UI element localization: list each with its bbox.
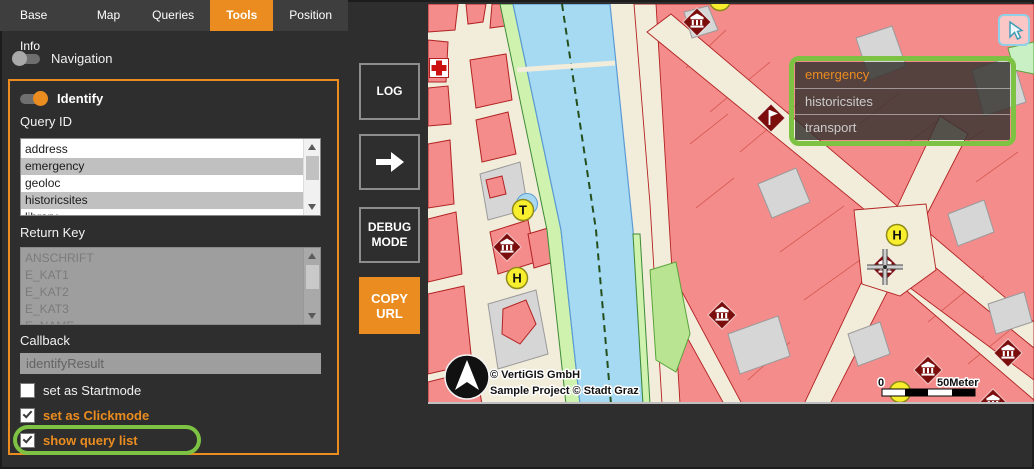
checkbox-label: show query list <box>43 433 138 448</box>
list-option-geoloc[interactable]: geoloc <box>21 175 320 192</box>
list-option-emergency[interactable]: emergency <box>21 158 320 175</box>
scroll-down-icon[interactable] <box>308 313 316 319</box>
svg-text:© VertiGIS GmbH: © VertiGIS GmbH <box>490 369 580 381</box>
svg-text:0: 0 <box>878 377 884 389</box>
svg-text:H: H <box>892 228 901 243</box>
identify-label: Identify <box>57 91 103 106</box>
popup-item-emergency[interactable]: emergency <box>795 62 1010 88</box>
navigation-toggle-row: Navigation <box>14 51 112 66</box>
scrollbar-thumb[interactable] <box>306 156 319 180</box>
tab-bar: Base InfoMapQueriesToolsPosition <box>0 0 348 31</box>
checkbox-set-as-clickmode[interactable]: set as Clickmode <box>20 406 149 424</box>
scrollbar[interactable] <box>303 139 320 215</box>
checkbox-label: set as Clickmode <box>43 408 149 423</box>
list-option-e-kat3[interactable]: E_KAT3 <box>21 301 320 318</box>
list-option-historicsites[interactable]: historicsites <box>21 192 320 209</box>
svg-text:T: T <box>519 203 527 218</box>
return-key-label: Return Key <box>20 225 85 240</box>
list-option-e-kat1[interactable]: E_KAT1 <box>21 267 320 284</box>
svg-text:Sample Project © Stadt Graz: Sample Project © Stadt Graz <box>490 385 639 397</box>
checkbox-set-as-startmode[interactable]: set as Startmode <box>20 381 141 399</box>
svg-text:H: H <box>512 271 521 286</box>
query-id-label: Query ID <box>20 114 72 129</box>
list-option-anschrift[interactable]: ANSCHRIFT <box>21 250 320 267</box>
checkbox-group: set as Startmodeset as Clickmodeshow que… <box>20 381 330 456</box>
checkbox-show-query-list[interactable]: show query list <box>20 431 138 449</box>
list-option-e-name[interactable]: E_NAME <box>21 318 320 325</box>
svg-text:50Meter: 50Meter <box>937 377 979 389</box>
return-key-listbox[interactable]: ANSCHRIFTE_KAT1E_KAT2E_KAT3E_NAME <box>20 247 321 325</box>
checkbox-box[interactable] <box>20 383 35 398</box>
popup-item-transport[interactable]: transport <box>795 114 1010 140</box>
cursor-icon <box>1003 19 1025 41</box>
callback-input[interactable] <box>20 353 321 374</box>
tab-position[interactable]: Position <box>273 0 348 31</box>
hospital-marker <box>430 59 449 78</box>
list-option-address[interactable]: address <box>21 141 320 158</box>
scrollbar-thumb[interactable] <box>306 265 319 289</box>
checkbox-box[interactable] <box>20 408 35 423</box>
scroll-up-icon[interactable] <box>308 144 316 150</box>
check-mark-icon <box>23 433 33 443</box>
checkbox-label: set as Startmode <box>43 383 141 398</box>
tab-queries[interactable]: Queries <box>136 0 210 31</box>
scroll-up-icon[interactable] <box>308 253 316 259</box>
checkbox-box[interactable] <box>20 433 35 448</box>
copy-url-button[interactable]: COPY URL <box>359 277 420 334</box>
north-arrow <box>445 355 489 399</box>
toggle-knob <box>12 51 27 66</box>
identify-toggle[interactable] <box>20 94 46 104</box>
arrow-right-button[interactable] <box>359 134 420 190</box>
scroll-down-icon[interactable] <box>308 204 316 210</box>
bus-stop-marker: H <box>887 225 908 246</box>
log-button[interactable]: LOG <box>359 63 420 120</box>
toggle-knob <box>33 91 48 106</box>
identify-toggle-row: Identify <box>20 91 103 106</box>
tab-map[interactable]: Map <box>81 0 136 31</box>
bus-stop-marker: H <box>507 268 528 289</box>
callback-label: Callback <box>20 333 70 348</box>
query-id-listbox[interactable]: addressemergencygeolochistoricsiteslibra… <box>20 138 321 216</box>
navigation-label: Navigation <box>51 51 112 66</box>
query-list-popup: emergencyhistoricsitestransport <box>795 62 1010 140</box>
map-canvas[interactable]: THH © VertiGIS GmbH Sample Project © Sta… <box>428 4 1034 404</box>
navigation-toggle[interactable] <box>14 54 40 64</box>
identify-group: Identify Query ID addressemergencygeoloc… <box>8 79 339 455</box>
pointer-tool-button[interactable] <box>998 14 1030 46</box>
tab-base-info[interactable]: Base Info <box>4 0 81 31</box>
tab-tools[interactable]: Tools <box>210 0 273 31</box>
check-mark-icon <box>23 408 33 418</box>
arrow-right-icon <box>374 151 406 173</box>
scrollbar[interactable] <box>303 248 320 324</box>
list-option-e-kat2[interactable]: E_KAT2 <box>21 284 320 301</box>
list-option-library[interactable]: library <box>21 209 320 216</box>
debug-mode-button[interactable]: DEBUG MODE <box>359 207 420 263</box>
application-window: Base InfoMapQueriesToolsPosition Navigat… <box>0 0 1034 469</box>
popup-item-historicsites[interactable]: historicsites <box>795 88 1010 114</box>
